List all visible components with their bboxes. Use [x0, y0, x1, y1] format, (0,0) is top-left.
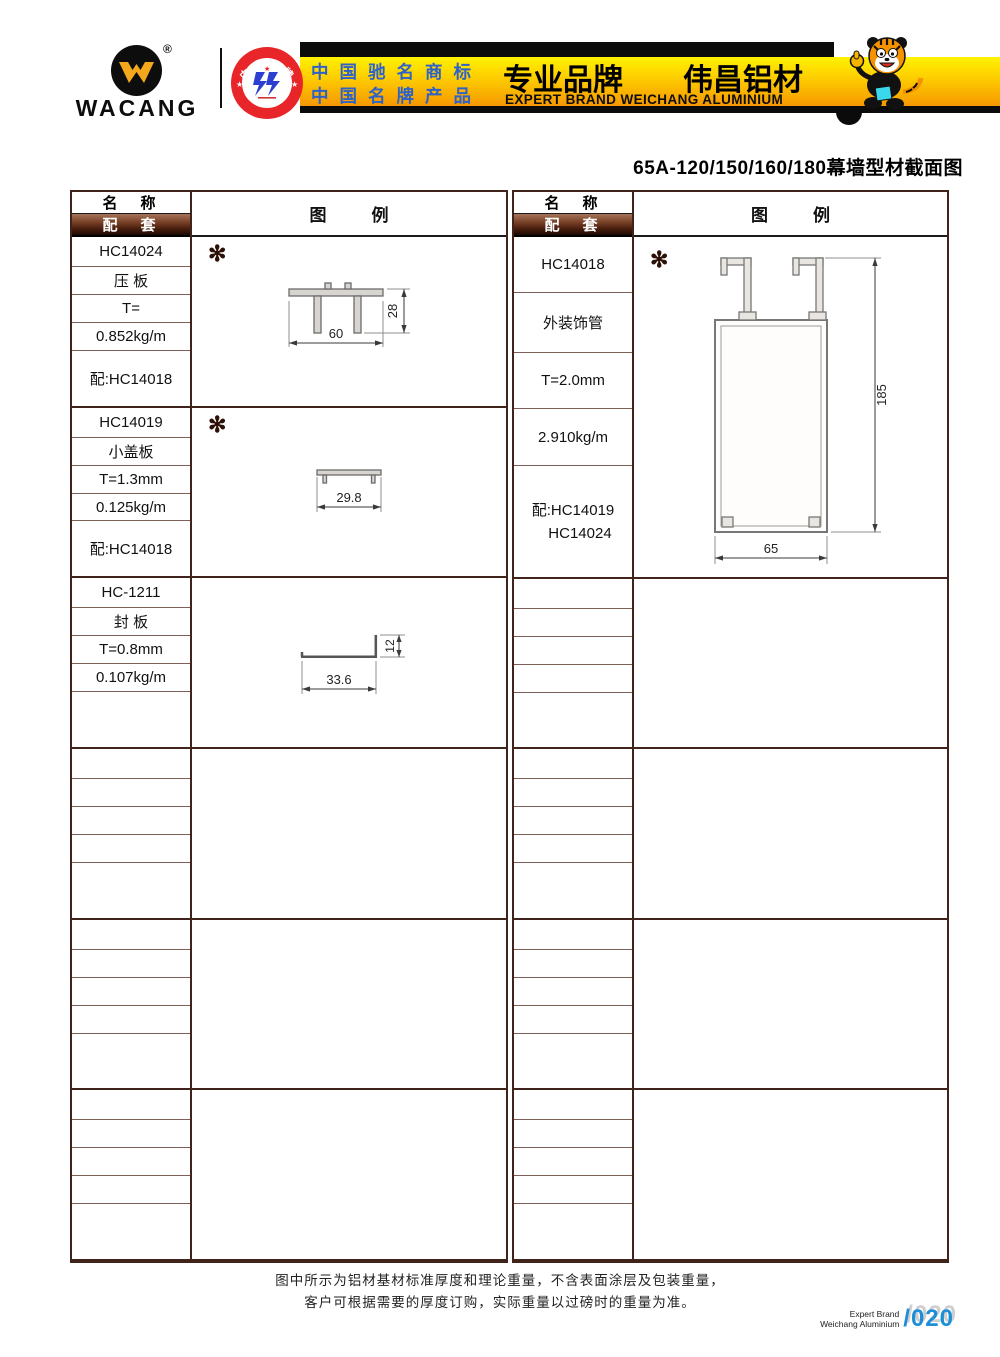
profile-table-left: 名 称 配 套 HC14024 压 板 T= 0.852kg/m 配:HC140…: [70, 190, 508, 1263]
empty-cell: [72, 978, 190, 1006]
empty-cell: [72, 749, 190, 779]
wacang-logo-icon: [110, 44, 163, 102]
legend-hc14019: ✻ 29.8: [192, 408, 506, 579]
empty-cell: [72, 779, 190, 807]
profile-name-cell: 压 板: [72, 267, 190, 295]
page-number: /020: [903, 1305, 954, 1333]
empty-cell: [72, 1176, 190, 1204]
tiger-mascot-icon: [843, 30, 933, 121]
profile-name-cell: 外装饰管: [514, 293, 632, 353]
empty-cell: [72, 1006, 190, 1034]
empty-cell: [72, 1204, 190, 1261]
profile-thickness-cell: T=1.3mm: [72, 466, 190, 494]
empty-legend-cell: [634, 1090, 947, 1261]
column-header-legend: 图 例: [634, 192, 947, 237]
right-legend-column: 图 例 ✻: [634, 192, 947, 1261]
empty-cell: [72, 1148, 190, 1176]
empty-cell: [514, 693, 632, 750]
claim-line-1: 中国驰名商标: [311, 60, 482, 84]
empty-legend-cell: [634, 579, 947, 750]
empty-legend-cell: [634, 749, 947, 920]
wacang-logo-text: WACANG: [62, 95, 212, 122]
asterisk-mark: ✻: [650, 247, 668, 273]
empty-cell: [514, 579, 632, 609]
empty-cell: [514, 1176, 632, 1204]
profile-code-cell: HC14024: [72, 237, 190, 267]
empty-cell: [514, 920, 632, 950]
empty-cell: [72, 1090, 190, 1120]
empty-cell: [514, 749, 632, 779]
page-title: 65A-120/150/160/180幕墙型材截面图: [633, 153, 963, 180]
empty-legend-cell: [634, 920, 947, 1091]
header-claims: 中国驰名商标 中国名牌产品: [311, 60, 482, 108]
left-name-column: 名 称 配 套 HC14024 压 板 T= 0.852kg/m 配:HC140…: [72, 192, 192, 1261]
hc14019-section-drawing: 29.8: [284, 460, 414, 524]
match-line-2: HC14024: [534, 522, 611, 545]
dim-width-label: 65: [763, 541, 777, 556]
badge-star-right: ★: [291, 80, 298, 89]
profile-table-right: 名 称 配 套 HC14018 外装饰管 T=2.0mm 2.910kg/m 配…: [512, 190, 949, 1263]
profile-weight-cell: 0.125kg/m: [72, 494, 190, 522]
footer-note-line-1: 图中所示为铝材基材标准厚度和理论重量，不含表面涂层及包装重量，: [0, 1270, 1000, 1292]
profile-code-cell: HC-1211: [72, 578, 190, 608]
footer-brand-small: Expert Brand Weichang Aluminium: [820, 1309, 899, 1329]
empty-cell: [72, 1034, 190, 1091]
empty-cell: [72, 863, 190, 920]
empty-cell: [514, 1090, 632, 1120]
empty-cell: [514, 637, 632, 665]
empty-cell: [72, 807, 190, 835]
empty-cell: [514, 950, 632, 978]
dim-width-label: 60: [329, 326, 343, 341]
empty-cell: [72, 835, 190, 863]
asterisk-mark: ✻: [208, 412, 226, 438]
empty-legend-cell: [192, 1090, 506, 1261]
profile-thickness-cell: T=2.0mm: [514, 353, 632, 410]
right-name-column: 名 称 配 套 HC14018 外装饰管 T=2.0mm 2.910kg/m 配…: [514, 192, 634, 1261]
legend-hc14018: ✻: [634, 237, 947, 579]
empty-cell: [514, 1006, 632, 1034]
badge-emblem-star: ★: [264, 65, 270, 73]
asterisk-mark: ✻: [208, 241, 226, 267]
profile-match-cell: [72, 692, 190, 749]
profile-code-cell: HC14018: [514, 237, 632, 293]
empty-cell: [514, 609, 632, 637]
empty-cell: [514, 1148, 632, 1176]
match-line-1: 配:HC14019: [532, 499, 615, 522]
column-header-name: 名 称: [514, 192, 632, 214]
empty-cell: [514, 1120, 632, 1148]
empty-legend-cell: [192, 749, 506, 920]
dim-height-label: 28: [385, 304, 400, 318]
catalog-page: ® WACANG 中国名牌 CHINA TOP BRAND ★ ★: [0, 0, 1000, 1357]
empty-cell: [514, 1204, 632, 1261]
legend-hc14024: ✻: [192, 237, 506, 408]
dim-width-label: 33.6: [326, 672, 351, 687]
dim-height-label: 185: [874, 384, 889, 406]
hc14018-section-drawing: 185 65: [685, 242, 897, 572]
empty-cell: [514, 807, 632, 835]
empty-cell: [72, 920, 190, 950]
column-header-match: 配 套: [72, 214, 190, 237]
profile-match-cell: 配:HC14018: [72, 351, 190, 408]
profile-code-cell: HC14019: [72, 408, 190, 438]
empty-cell: [514, 1034, 632, 1091]
dim-height-label: 12: [383, 639, 397, 653]
header-divider: [220, 48, 222, 108]
empty-cell: [72, 950, 190, 978]
left-legend-column: 图 例 ✻: [192, 192, 506, 1261]
profile-name-cell: 小盖板: [72, 438, 190, 466]
profile-match-cell: 配:HC14019 HC14024: [514, 466, 632, 579]
profile-weight-cell: 0.107kg/m: [72, 664, 190, 692]
empty-cell: [514, 665, 632, 693]
profile-name-cell: 封 板: [72, 608, 190, 636]
empty-cell: [72, 1120, 190, 1148]
empty-cell: [514, 779, 632, 807]
profile-weight-cell: 2.910kg/m: [514, 409, 632, 466]
page-number-block: Expert Brand Weichang Aluminium /020: [820, 1305, 954, 1333]
badge-star-left: ★: [236, 80, 243, 89]
hc1211-section-drawing: 33.6 12: [274, 621, 424, 705]
column-header-match: 配 套: [514, 214, 632, 237]
profile-weight-cell: 0.852kg/m: [72, 323, 190, 351]
column-header-legend: 图 例: [192, 192, 506, 237]
empty-cell: [514, 863, 632, 920]
empty-cell: [514, 835, 632, 863]
brand-slogan-en: EXPERT BRAND WEICHANG ALUMINIUM: [505, 92, 783, 107]
dim-width-label: 29.8: [336, 490, 361, 505]
profile-thickness-cell: T=0.8mm: [72, 636, 190, 664]
hc14024-section-drawing: 60 28: [269, 275, 429, 367]
profile-thickness-cell: T=: [72, 295, 190, 323]
claim-line-2: 中国名牌产品: [311, 84, 482, 108]
empty-cell: [514, 978, 632, 1006]
registered-mark: ®: [163, 42, 172, 56]
column-header-name: 名 称: [72, 192, 190, 214]
legend-hc1211: 33.6 12: [192, 578, 506, 749]
profile-match-cell: 配:HC14018: [72, 521, 190, 578]
empty-legend-cell: [192, 920, 506, 1091]
china-top-brand-badge-icon: 中国名牌 CHINA TOP BRAND ★ ★ ★: [229, 44, 305, 127]
